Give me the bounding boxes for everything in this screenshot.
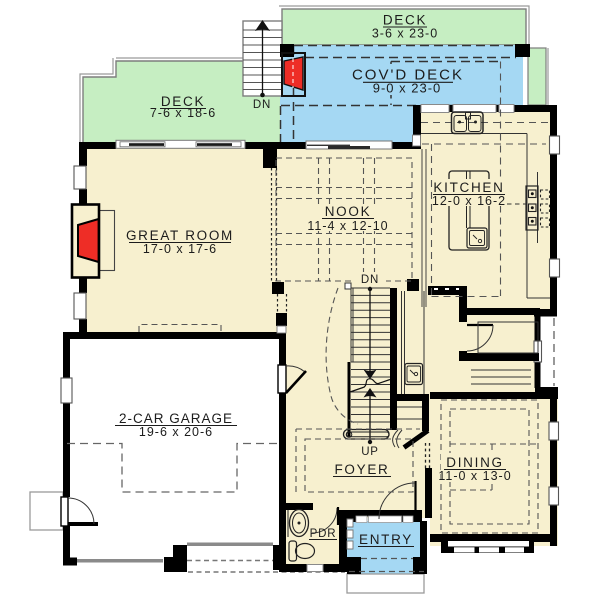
- svg-text:DINING: DINING: [446, 455, 503, 470]
- svg-text:9-0 x 23-0: 9-0 x 23-0: [373, 81, 442, 96]
- svg-text:19-6 x 20-6: 19-6 x 20-6: [139, 425, 213, 439]
- svg-text:FOYER: FOYER: [334, 462, 389, 477]
- svg-text:DN: DN: [361, 274, 379, 286]
- svg-text:2-CAR GARAGE: 2-CAR GARAGE: [119, 411, 233, 426]
- svg-text:UP: UP: [361, 446, 379, 458]
- svg-text:ENTRY: ENTRY: [359, 532, 413, 547]
- svg-text:DECK: DECK: [383, 13, 427, 28]
- svg-text:11-0 x 13-0: 11-0 x 13-0: [438, 469, 511, 483]
- svg-text:GREAT ROOM: GREAT ROOM: [126, 228, 234, 243]
- svg-text:7-6 x 18-6: 7-6 x 18-6: [150, 106, 216, 120]
- svg-text:11-4 x 12-10: 11-4 x 12-10: [307, 219, 388, 233]
- svg-text:DN: DN: [253, 99, 271, 111]
- svg-text:17-0 x 17-6: 17-0 x 17-6: [143, 242, 217, 256]
- svg-text:KITCHEN: KITCHEN: [433, 180, 504, 195]
- svg-text:3-6 x 23-0: 3-6 x 23-0: [372, 27, 438, 41]
- svg-text:12-0 x 16-2: 12-0 x 16-2: [432, 194, 506, 208]
- svg-text:NOOK: NOOK: [325, 204, 372, 219]
- svg-text:PDR: PDR: [310, 528, 337, 540]
